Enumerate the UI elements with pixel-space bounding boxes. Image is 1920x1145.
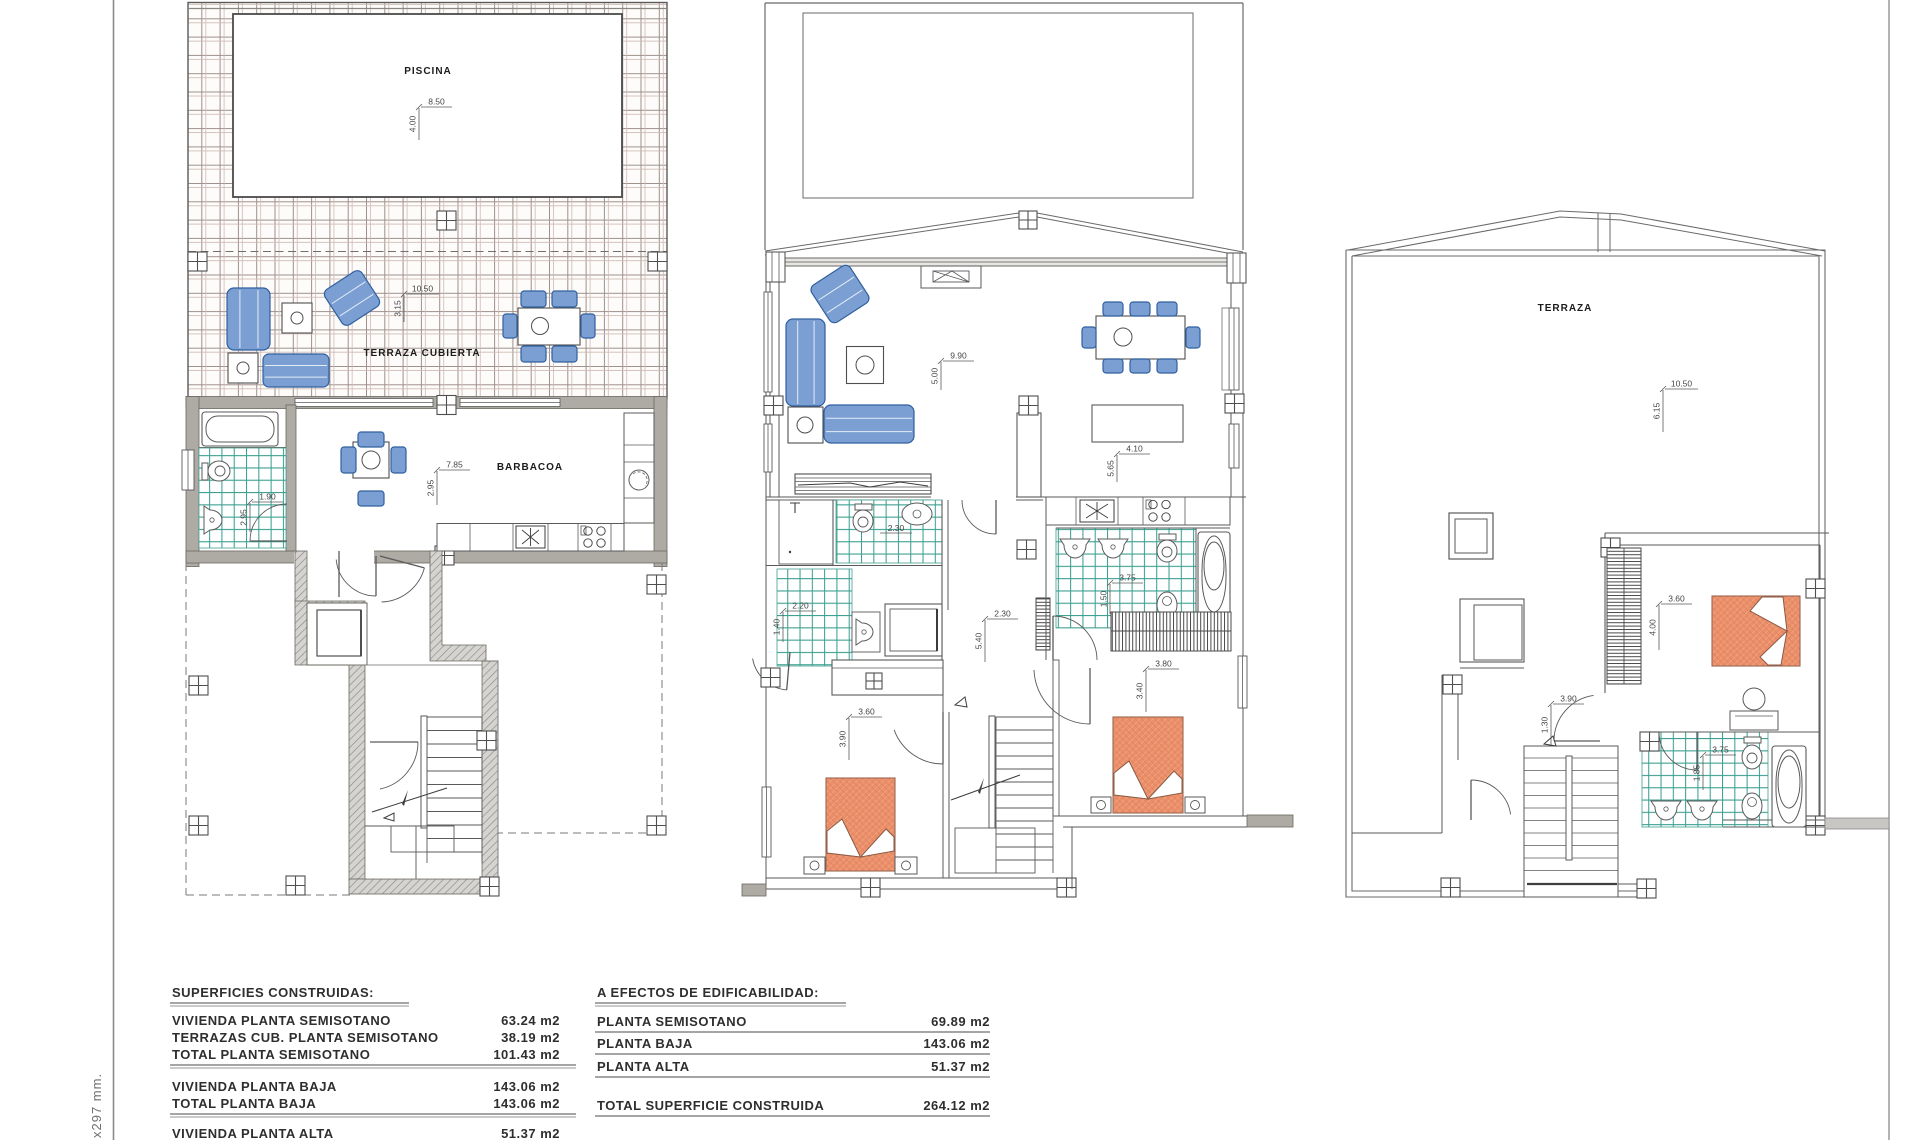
svg-text:7.85: 7.85 <box>446 460 463 470</box>
svg-text:PISCINA: PISCINA <box>404 66 452 77</box>
svg-text:10.50: 10.50 <box>412 284 434 294</box>
svg-text:143.06 m2: 143.06 m2 <box>923 1036 990 1051</box>
svg-text:4.10: 4.10 <box>1126 444 1143 454</box>
svg-text:PLANTA ALTA: PLANTA ALTA <box>597 1059 690 1074</box>
svg-text:5.65: 5.65 <box>1106 460 1116 477</box>
svg-text:TOTAL PLANTA SEMISOTANO: TOTAL PLANTA SEMISOTANO <box>172 1047 370 1062</box>
svg-text:2.95: 2.95 <box>426 479 436 496</box>
svg-text:9.90: 9.90 <box>950 351 967 361</box>
svg-text:8.50: 8.50 <box>428 97 445 107</box>
svg-text:143.06 m2: 143.06 m2 <box>493 1079 560 1094</box>
svg-text:3.40: 3.40 <box>1135 682 1145 699</box>
svg-text:51.37 m2: 51.37 m2 <box>501 1126 560 1140</box>
svg-text:TERRAZAS CUB. PLANTA SEMISO: TERRAZAS CUB. PLANTA SEMISOTANO <box>172 1030 439 1045</box>
svg-text:3.80: 3.80 <box>1155 659 1172 669</box>
svg-text:1.40: 1.40 <box>772 618 782 635</box>
svg-text:143.06 m2: 143.06 m2 <box>493 1096 560 1111</box>
svg-text:2.30: 2.30 <box>994 609 1011 619</box>
svg-text:1.90: 1.90 <box>259 492 276 502</box>
svg-text:SUPERFICIES CONSTRUIDAS:: SUPERFICIES CONSTRUIDAS: <box>172 985 374 1000</box>
svg-text:VIVIENDA PLANTA SEMISOTANO: VIVIENDA PLANTA SEMISOTANO <box>172 1013 391 1028</box>
svg-text:VIVIENDA PLANTA BAJA: VIVIENDA PLANTA BAJA <box>172 1079 337 1094</box>
svg-text:3.90: 3.90 <box>1560 694 1577 704</box>
svg-text:TOTAL PLANTA BAJA: TOTAL PLANTA BAJA <box>172 1096 316 1111</box>
svg-text:63.24 m2: 63.24 m2 <box>501 1013 560 1028</box>
svg-text:2.30: 2.30 <box>888 523 905 533</box>
svg-text:VIVIENDA PLANTA ALTA: VIVIENDA PLANTA ALTA <box>172 1126 334 1140</box>
svg-text:BARBACOA: BARBACOA <box>497 462 563 473</box>
svg-text:101.43 m2: 101.43 m2 <box>493 1047 560 1062</box>
svg-text:2.20: 2.20 <box>792 601 809 611</box>
svg-text:5.40: 5.40 <box>974 632 984 649</box>
svg-text:3.75: 3.75 <box>1712 745 1729 755</box>
svg-text:x297 mm.: x297 mm. <box>89 1073 104 1138</box>
svg-text:1.85: 1.85 <box>1692 764 1702 781</box>
svg-text:1.50: 1.50 <box>1099 590 1109 607</box>
svg-text:6.15: 6.15 <box>1652 402 1662 419</box>
svg-text:TOTAL SUPERFICIE CONSTRUIDA: TOTAL SUPERFICIE CONSTRUIDA <box>597 1098 824 1113</box>
svg-text:3.90: 3.90 <box>838 730 848 747</box>
svg-text:264.12 m2: 264.12 m2 <box>923 1098 990 1113</box>
svg-text:TERRAZA CUBIERTA: TERRAZA CUBIERTA <box>363 348 480 359</box>
svg-text:4.00: 4.00 <box>1648 619 1658 636</box>
svg-text:3.15: 3.15 <box>393 300 403 317</box>
svg-text:A EFECTOS DE EDIFICABILIDAD: A EFECTOS DE EDIFICABILIDAD: <box>597 985 819 1000</box>
svg-text:4.00: 4.00 <box>408 115 418 132</box>
svg-text:38.19 m2: 38.19 m2 <box>501 1030 560 1045</box>
svg-text:3.75: 3.75 <box>1119 573 1136 583</box>
svg-text:3.60: 3.60 <box>858 707 875 717</box>
svg-text:10.50: 10.50 <box>1671 379 1693 389</box>
svg-text:PLANTA SEMISOTANO: PLANTA SEMISOTANO <box>597 1014 747 1029</box>
svg-text:PLANTA BAJA: PLANTA BAJA <box>597 1036 693 1051</box>
svg-text:3.60: 3.60 <box>1668 594 1685 604</box>
svg-text:69.89 m2: 69.89 m2 <box>931 1014 990 1029</box>
svg-text:TERRAZA: TERRAZA <box>1538 303 1593 314</box>
svg-text:5.00: 5.00 <box>930 367 940 384</box>
svg-text:2.95: 2.95 <box>239 509 249 526</box>
svg-text:51.37 m2: 51.37 m2 <box>931 1059 990 1074</box>
svg-text:1.30: 1.30 <box>1540 716 1550 733</box>
